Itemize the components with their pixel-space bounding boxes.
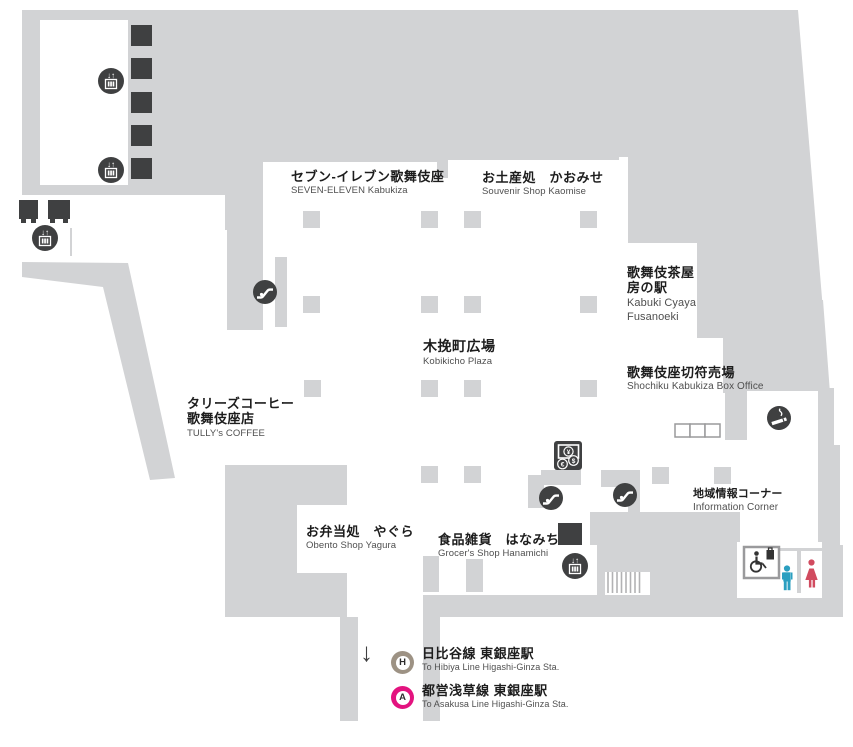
hibiya-station-jp: 日比谷線 東銀座駅 <box>422 646 559 661</box>
label-seven-eleven: セブン-イレブン歌舞伎座 SEVEN-ELEVEN Kabukiza <box>291 169 444 197</box>
kobikicho-plaza-floor-map: ¥ € $ ↓↑ ↓↑ ↓↑ ↓↑ <box>0 0 853 747</box>
tullys-jp-1: タリーズコーヒー <box>187 396 294 411</box>
label-info-corner: 地域情報コーナー Information Corner <box>693 488 783 514</box>
souvenir-en: Souvenir Shop Kaomise <box>482 186 604 197</box>
chaya-en-1: Kabuki Cyaya <box>627 297 696 310</box>
svg-text:↓↑: ↓↑ <box>571 556 579 565</box>
escalator-icon <box>613 483 637 507</box>
info-corner-en: Information Corner <box>693 502 783 514</box>
elevator-icon: ↓↑ <box>562 553 588 579</box>
label-souvenir-shop: お土産処 かおみせ Souvenir Shop Kaomise <box>482 170 604 198</box>
svg-text:¥: ¥ <box>567 449 571 456</box>
elevator-icon: ↓↑ <box>98 157 124 183</box>
asakusa-station-en: To Asakusa Line Higashi-Ginza Sta. <box>422 699 568 710</box>
svg-text:↓↑: ↓↑ <box>41 228 49 237</box>
chaya-jp-1: 歌舞伎茶屋 <box>627 265 696 280</box>
box-office-en: Shochiku Kabukiza Box Office <box>627 381 764 393</box>
hibiya-line-badge: H <box>391 651 414 674</box>
souvenir-jp: お土産処 かおみせ <box>482 170 604 185</box>
label-kabuki-chaya: 歌舞伎茶屋 房の駅 Kabuki Cyaya Fusanoeki <box>627 265 696 324</box>
label-box-office: 歌舞伎座切符売場 Shochiku Kabukiza Box Office <box>627 365 764 393</box>
obento-en: Obento Shop Yagura <box>306 540 414 551</box>
accessible-restroom-icon <box>744 547 779 578</box>
elevator-icon: ↓↑ <box>32 225 58 251</box>
seven-eleven-en: SEVEN-ELEVEN Kabukiza <box>291 185 444 196</box>
grocer-jp: 食品雑貨 はなみち <box>438 532 560 547</box>
label-grocer-hanamichi: 食品雑貨 はなみち Grocer's Shop Hanamichi <box>438 532 560 560</box>
plaza-en: Kobikicho Plaza <box>423 356 496 367</box>
label-plaza: 木挽町広場 Kobikicho Plaza <box>423 338 496 367</box>
obento-jp: お弁当処 やぐら <box>306 524 414 539</box>
asakusa-line-letter: A <box>396 691 410 705</box>
plaza-jp: 木挽町広場 <box>423 338 496 355</box>
chaya-jp-2: 房の駅 <box>627 280 696 295</box>
label-hibiya-station: 日比谷線 東銀座駅 To Hibiya Line Higashi-Ginza S… <box>422 646 559 673</box>
label-tullys-coffee: タリーズコーヒー 歌舞伎座店 TULLY's COFFEE <box>187 396 294 439</box>
svg-text:$: $ <box>572 458 576 465</box>
info-corner-jp: 地域情報コーナー <box>693 488 783 501</box>
label-obento-yagura: お弁当処 やぐら Obento Shop Yagura <box>306 524 414 552</box>
hibiya-line-letter: H <box>396 656 410 670</box>
svg-text:€: € <box>561 462 565 469</box>
asakusa-station-jp: 都営浅草線 東銀座駅 <box>422 683 568 698</box>
chaya-en-2: Fusanoeki <box>627 311 696 324</box>
box-office-jp: 歌舞伎座切符売場 <box>627 365 764 380</box>
seven-eleven-jp: セブン-イレブン歌舞伎座 <box>291 169 444 184</box>
asakusa-line-badge: A <box>391 686 414 709</box>
label-asakusa-station: 都営浅草線 東銀座駅 To Asakusa Line Higashi-Ginza… <box>422 683 568 710</box>
tullys-jp-2: 歌舞伎座店 <box>187 411 294 426</box>
escalator-icon <box>539 486 563 510</box>
hibiya-station-en: To Hibiya Line Higashi-Ginza Sta. <box>422 662 559 673</box>
svg-text:↓↑: ↓↑ <box>107 160 115 169</box>
down-arrow-icon: ↓ <box>360 637 373 668</box>
svg-text:↓↑: ↓↑ <box>107 71 115 80</box>
escalator-icon <box>253 280 277 304</box>
tullys-en: TULLY's COFFEE <box>187 428 294 439</box>
elevator-icon: ↓↑ <box>98 68 124 94</box>
ticket-windows <box>675 424 720 437</box>
grocer-en: Grocer's Shop Hanamichi <box>438 548 560 559</box>
currency-exchange-icon: ¥ € $ <box>554 441 582 470</box>
